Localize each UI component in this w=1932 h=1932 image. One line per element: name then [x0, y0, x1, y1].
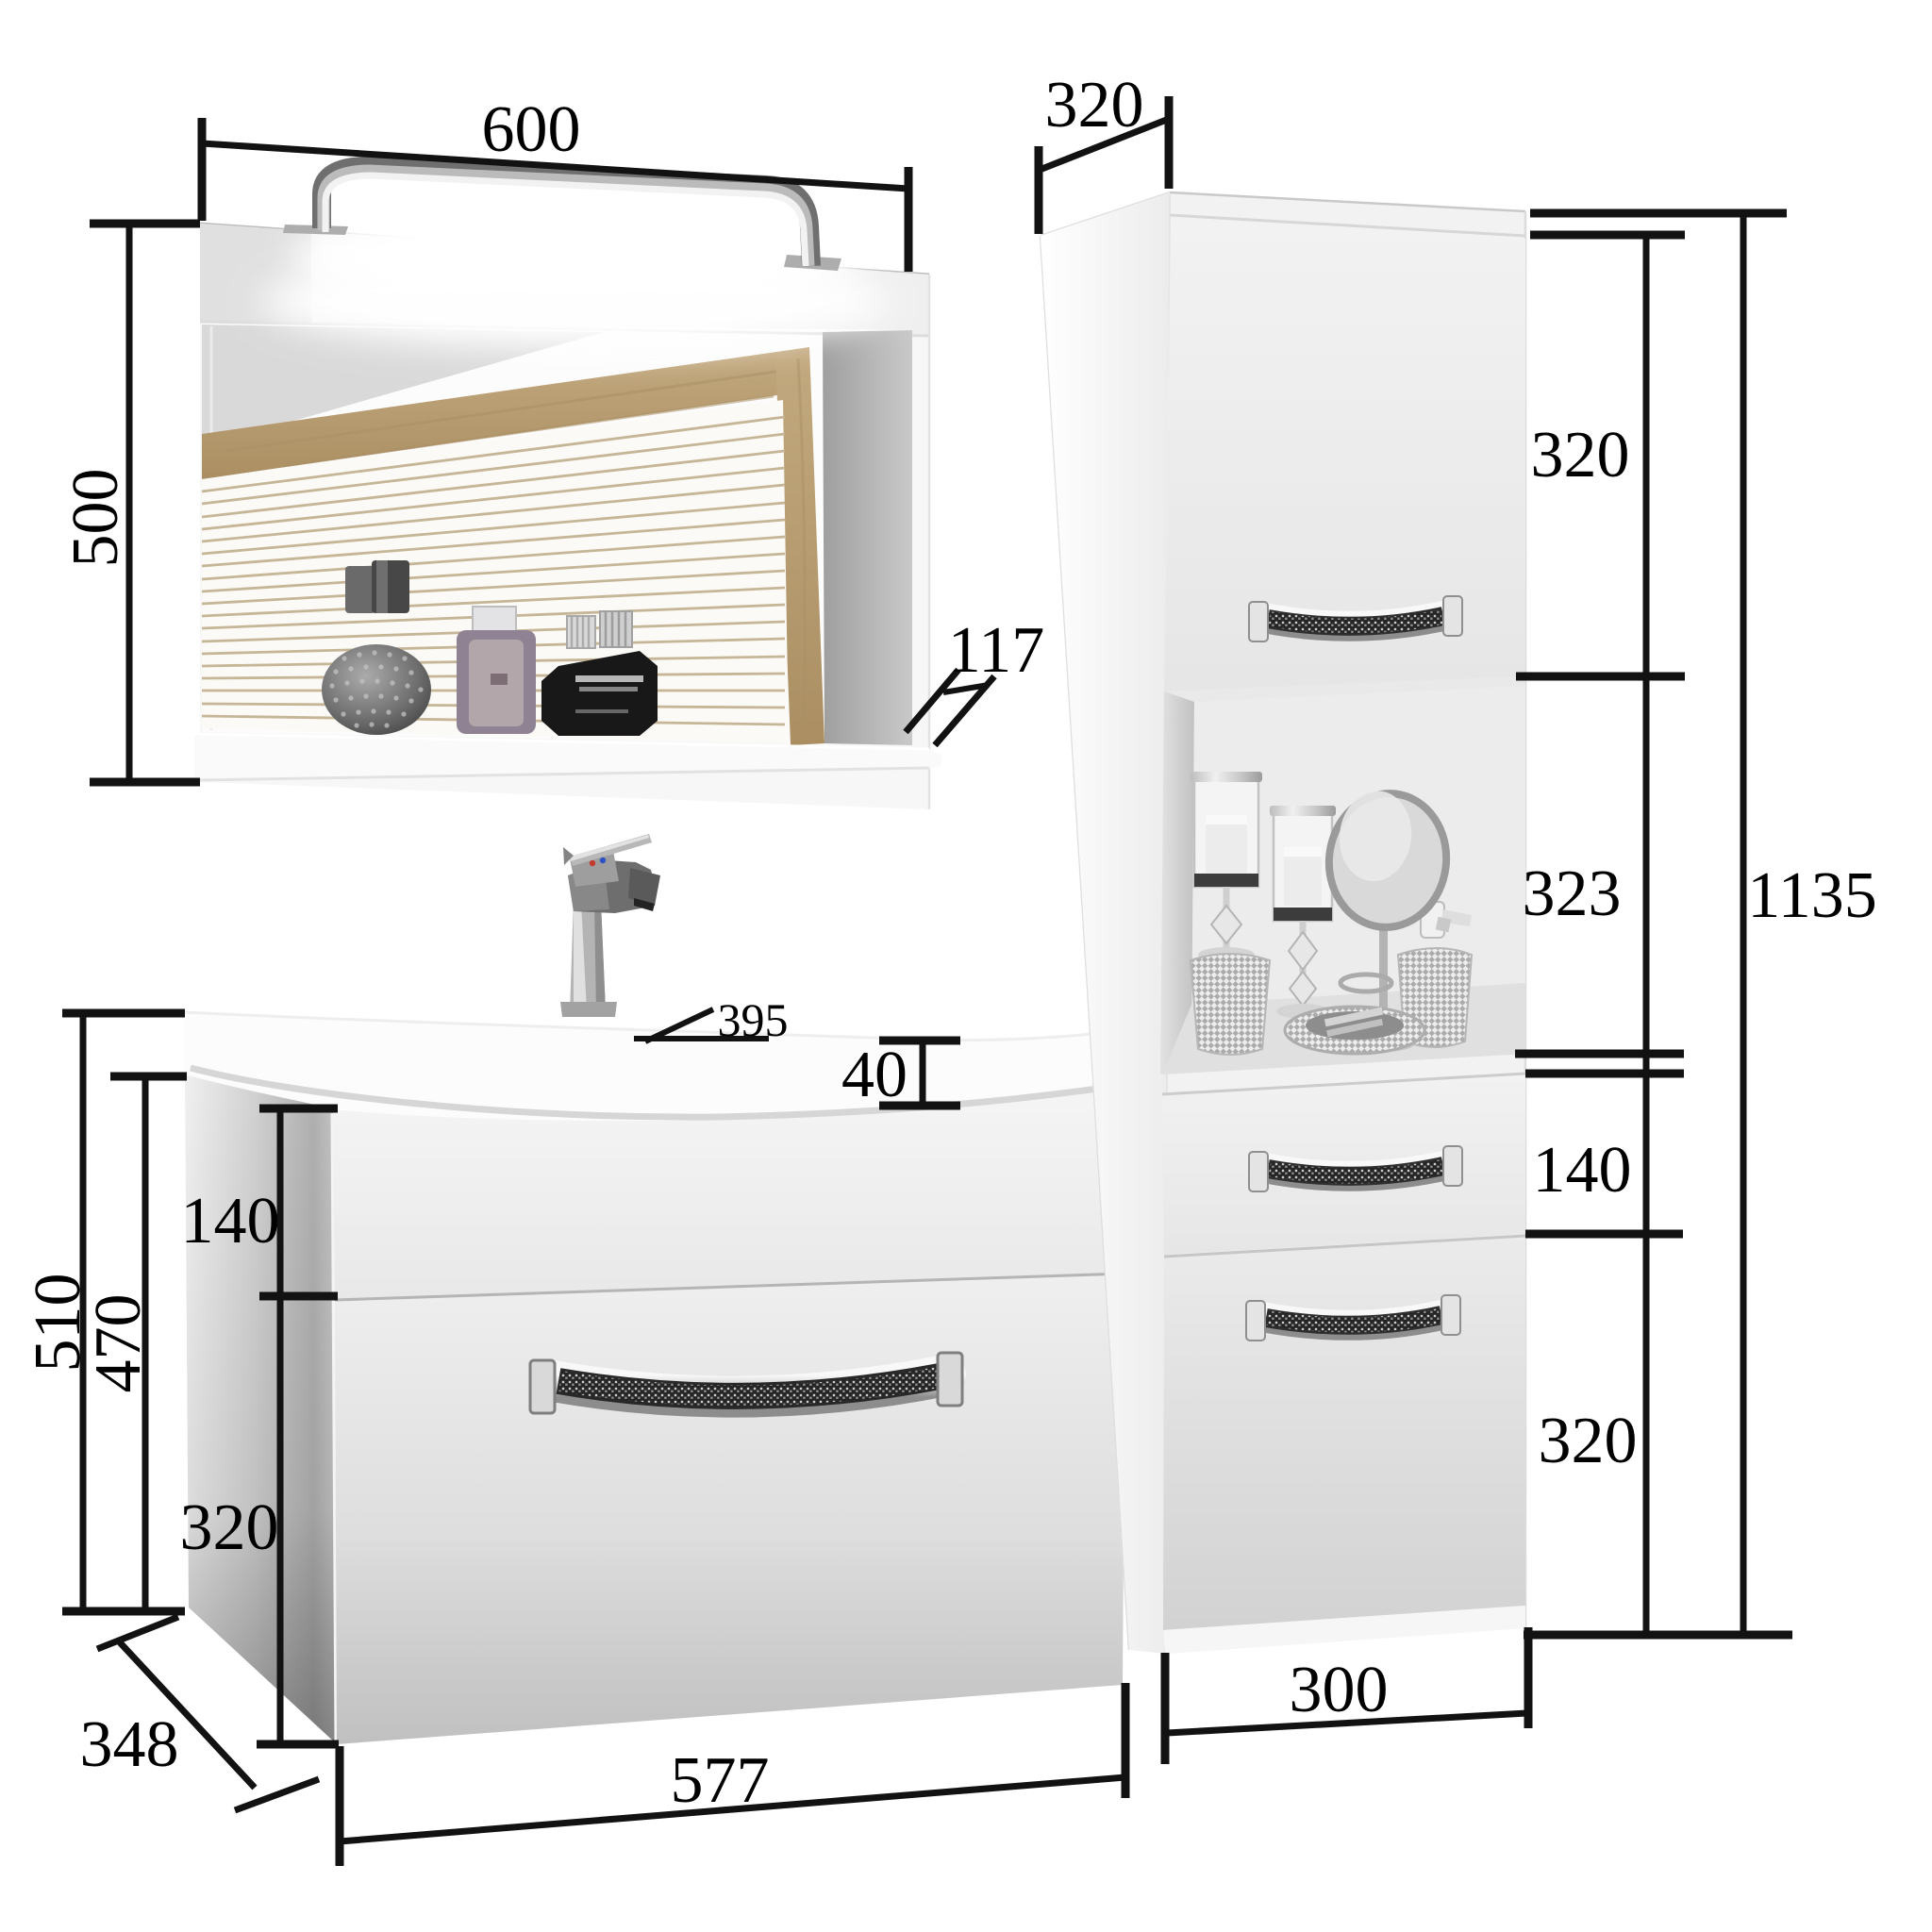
- svg-text:140: 140: [181, 1185, 280, 1257]
- svg-text:320: 320: [1539, 1405, 1638, 1477]
- svg-text:1135: 1135: [1747, 859, 1876, 932]
- svg-text:40: 40: [841, 1039, 908, 1111]
- svg-text:117: 117: [948, 614, 1044, 687]
- svg-text:323: 323: [1523, 858, 1622, 930]
- svg-text:577: 577: [671, 1744, 770, 1817]
- svg-text:395: 395: [718, 993, 789, 1046]
- svg-text:300: 300: [1290, 1654, 1389, 1726]
- svg-text:348: 348: [80, 1708, 179, 1781]
- svg-text:320: 320: [180, 1491, 279, 1564]
- svg-text:470: 470: [82, 1294, 155, 1393]
- svg-text:600: 600: [482, 93, 581, 166]
- svg-text:500: 500: [59, 469, 132, 568]
- svg-text:140: 140: [1533, 1134, 1632, 1207]
- svg-text:320: 320: [1531, 419, 1630, 491]
- svg-text:320: 320: [1045, 69, 1144, 142]
